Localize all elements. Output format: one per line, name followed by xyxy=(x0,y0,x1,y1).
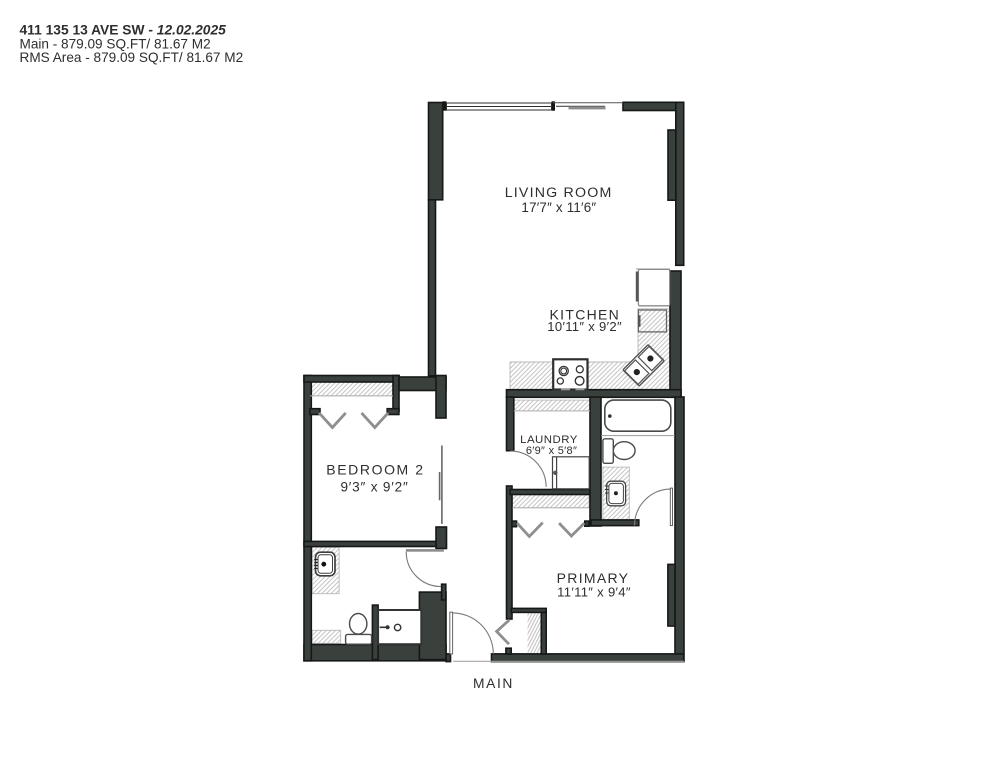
svg-text:10′11″ x 9′2″: 10′11″ x 9′2″ xyxy=(547,319,622,334)
svg-text:MAIN: MAIN xyxy=(473,676,514,691)
svg-text:6′9″ x 5′8″: 6′9″ x 5′8″ xyxy=(526,445,577,457)
svg-text:RMS Area - 879.09 SQ.FT/ 81.67: RMS Area - 879.09 SQ.FT/ 81.67 M2 xyxy=(20,50,244,65)
svg-text:11′11″ x 9′4″: 11′11″ x 9′4″ xyxy=(557,584,631,599)
svg-text:17′7″ x 11′6″: 17′7″ x 11′6″ xyxy=(521,200,596,215)
svg-text:411 135 13 AVE SW - 12.02.2025: 411 135 13 AVE SW - 12.02.2025 xyxy=(20,22,227,37)
svg-text:Main - 879.09 SQ.FT/ 81.67 M2: Main - 879.09 SQ.FT/ 81.67 M2 xyxy=(20,36,211,51)
svg-text:BEDROOM 2: BEDROOM 2 xyxy=(326,462,424,478)
svg-text:LIVING ROOM: LIVING ROOM xyxy=(505,185,613,201)
svg-text:PRIMARY: PRIMARY xyxy=(557,570,630,586)
svg-text:9′3″ x 9′2″: 9′3″ x 9′2″ xyxy=(340,480,408,495)
